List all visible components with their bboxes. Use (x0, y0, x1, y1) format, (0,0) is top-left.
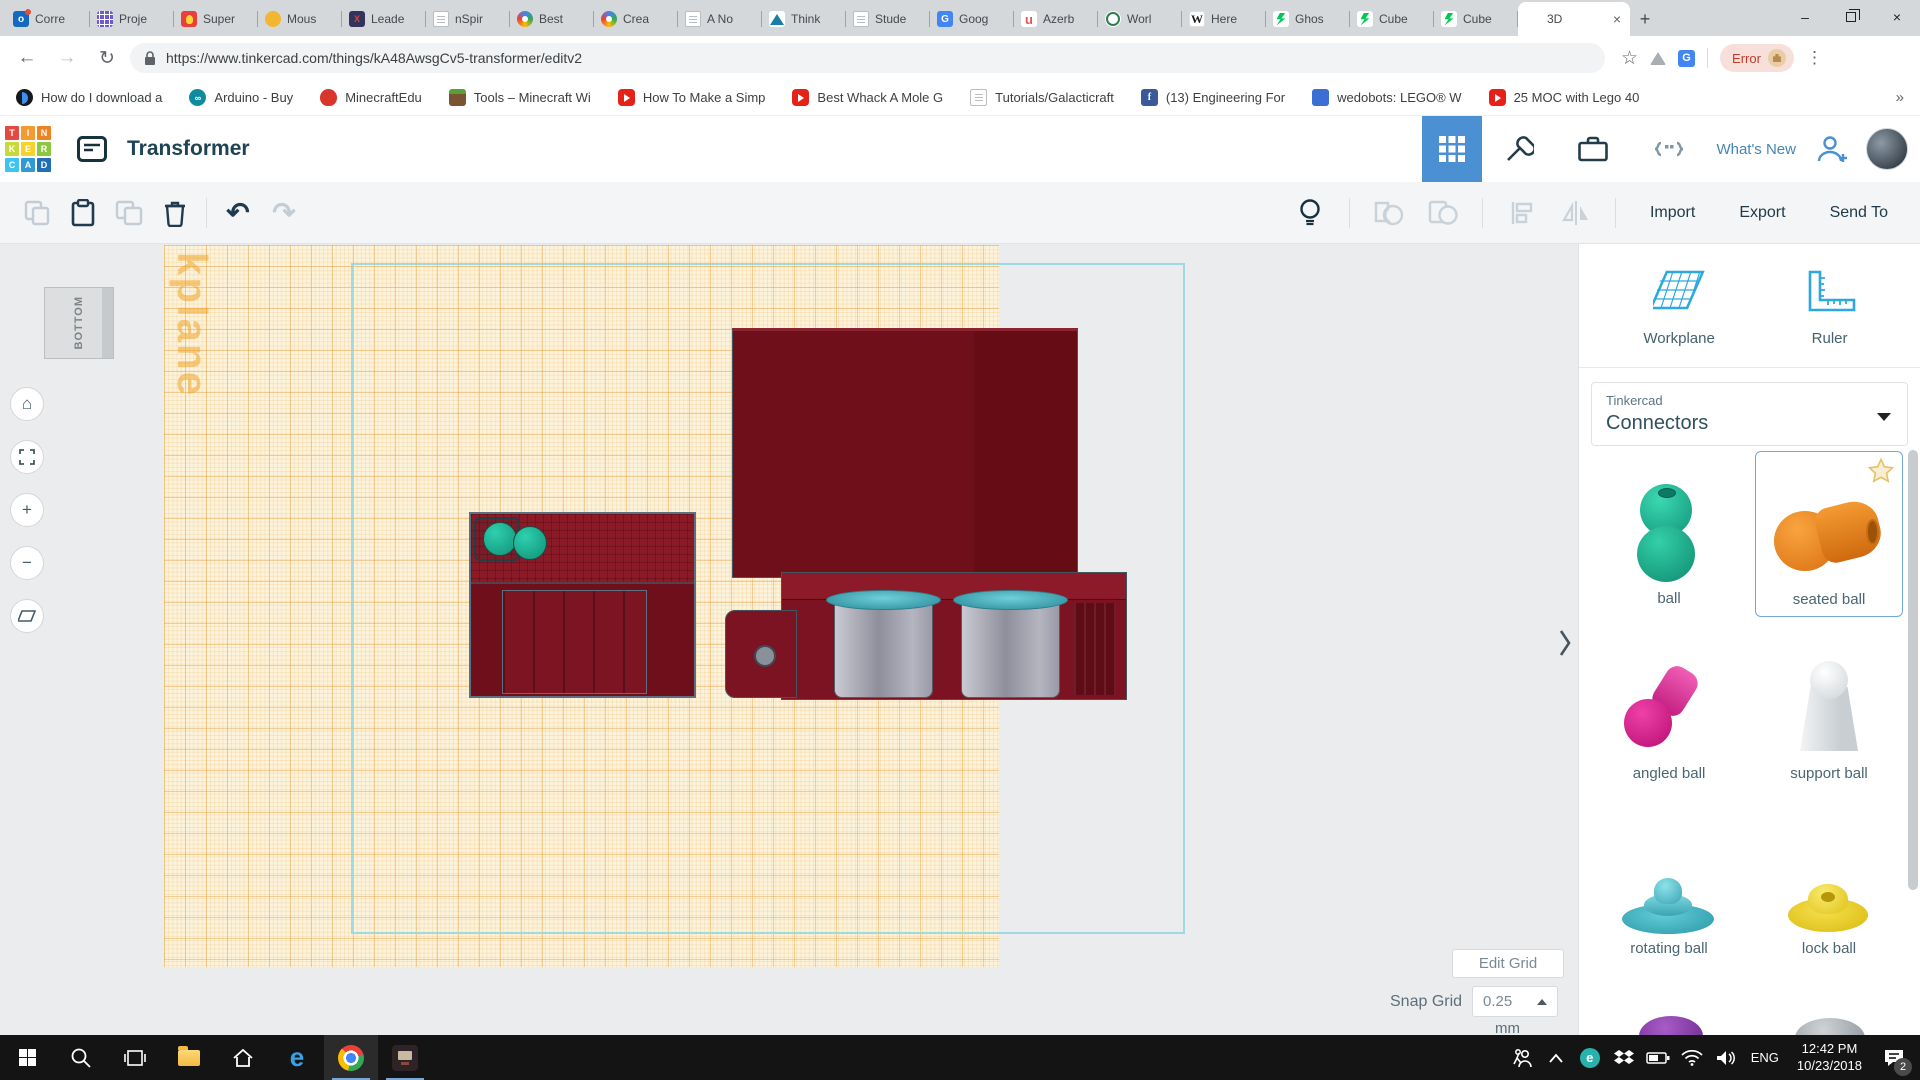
search-button[interactable] (54, 1035, 108, 1080)
ruler-tool[interactable]: Ruler (1804, 270, 1856, 347)
udemy-icon: u (1021, 11, 1037, 27)
lightbulb-icon (181, 11, 197, 27)
mirror-icon[interactable] (1553, 190, 1599, 236)
divider (206, 198, 207, 228)
panel-scrollbar[interactable] (1908, 450, 1918, 890)
youtube-icon (618, 89, 635, 106)
browser-tab[interactable]: GGoog (930, 2, 1014, 36)
window-minimize-button[interactable]: – (1782, 0, 1828, 34)
tinkercad-header: TIN KER CAD Transformer What's New (0, 116, 1920, 182)
redo-icon[interactable]: ↷ (261, 190, 307, 236)
url-text: https://www.tinkercad.com/things/kA48Aws… (166, 50, 582, 66)
browser-tab[interactable]: Think (762, 2, 846, 36)
document-icon (853, 11, 869, 27)
favorite-star-icon[interactable] (1868, 458, 1894, 483)
whats-new-link[interactable]: What's New (1716, 141, 1796, 158)
window-close-button[interactable]: × (1874, 0, 1920, 34)
dashboard-grid-button[interactable] (1422, 116, 1482, 182)
outlook-icon: o (13, 11, 29, 27)
align-icon[interactable] (1499, 190, 1545, 236)
browser-tab[interactable]: Cube (1350, 2, 1434, 36)
invite-person-icon[interactable] (1816, 134, 1850, 164)
model-left-ribs (502, 590, 647, 694)
workplane-tool[interactable]: Workplane (1643, 270, 1714, 347)
shape-angled-ball[interactable]: angled ball (1595, 630, 1743, 790)
palette-icon (601, 11, 617, 27)
snap-grid-label: Snap Grid (1390, 993, 1462, 1011)
bookmark-item[interactable]: Best Whack A Mole G (792, 89, 943, 106)
browser-tab-strip: oCorre Proje Super Mous XLeade nSpir Bes… (0, 0, 1920, 36)
model-cylinder[interactable] (834, 599, 933, 698)
robot-icon (1312, 89, 1329, 106)
chrome-icon (338, 1045, 364, 1071)
extension-puzzle-icon (1768, 49, 1786, 67)
divider (1615, 198, 1616, 228)
copy-icon[interactable] (14, 190, 60, 236)
model-chassis[interactable] (781, 572, 1127, 700)
deviantart-icon (1357, 11, 1373, 27)
shape-lock-ball[interactable]: lock ball (1755, 805, 1903, 965)
edit-toolbar: ↶ ↷ Import Export Send To (0, 182, 1920, 244)
palette-icon (517, 11, 533, 27)
model-teal-cap (953, 590, 1068, 610)
workplane-watermark: kplane (168, 252, 216, 397)
browser-tab[interactable]: Mous (258, 2, 342, 36)
wes-icon (1105, 11, 1121, 27)
document-icon (685, 11, 701, 27)
folder-icon (178, 1050, 200, 1066)
eset-icon[interactable]: e (1575, 1035, 1605, 1080)
restore-icon (1846, 12, 1856, 22)
error-extension-chip[interactable]: Error (1720, 44, 1794, 72)
browser-menu-icon[interactable]: ⋮ (1806, 48, 1823, 68)
circle-icon (16, 89, 33, 106)
tinkercad-icon (1525, 11, 1541, 27)
browser-tab[interactable]: Best (510, 2, 594, 36)
task-view-button[interactable] (108, 1035, 162, 1080)
shape-ball[interactable]: ball (1595, 455, 1743, 615)
bookmark-item[interactable]: How do I download a (16, 89, 162, 106)
browser-tab[interactable]: uAzerb (1014, 2, 1098, 36)
bookmark-item[interactable]: ∞Arduino - Buy (189, 89, 293, 106)
avatar[interactable] (1866, 128, 1908, 170)
ungroup-icon[interactable] (1420, 190, 1466, 236)
language-indicator[interactable]: ENG (1745, 1050, 1785, 1065)
export-button[interactable]: Export (1721, 196, 1803, 230)
mouse-icon (265, 11, 281, 27)
shapes-panel: Workplane Ruler Tinkercad Connectors bal… (1578, 244, 1920, 1080)
task-view-icon (123, 1048, 147, 1068)
shape-seated-ball[interactable]: seated ball (1755, 451, 1903, 617)
windows-logo-icon (19, 1049, 36, 1066)
wifi-icon[interactable] (1677, 1035, 1707, 1080)
bookmarks-overflow-icon[interactable]: » (1896, 89, 1904, 106)
url-input[interactable]: https://www.tinkercad.com/things/kA48Aws… (130, 43, 1605, 73)
zoom-out-button[interactable]: − (10, 546, 44, 580)
lightbulb-show-all-icon[interactable] (1287, 190, 1333, 236)
house-icon (231, 1047, 255, 1069)
model-teal-cap (826, 590, 941, 610)
wikipedia-icon: W (1189, 11, 1205, 27)
bookmark-item[interactable]: Tools – Minecraft Wi (449, 89, 591, 106)
arduino-icon: ∞ (189, 89, 206, 106)
send-to-button[interactable]: Send To (1812, 196, 1906, 230)
apple-icon (320, 89, 337, 106)
import-button[interactable]: Import (1632, 196, 1713, 230)
bookmark-item[interactable]: How To Make a Simp (618, 89, 766, 106)
back-icon[interactable]: ← (10, 41, 44, 75)
translate-icon: G (937, 11, 953, 27)
deviantart-icon (1273, 11, 1289, 27)
forward-icon[interactable]: → (50, 41, 84, 75)
window-restore-button[interactable] (1828, 0, 1874, 34)
model-chassis-ribs (1074, 603, 1116, 695)
autodesk-icon (769, 11, 785, 27)
fit-view-button[interactable] (10, 440, 44, 474)
purple-grid-icon (97, 11, 113, 27)
browser-tab[interactable]: XLeade (342, 2, 426, 36)
tinker-wrench-icon[interactable] (1504, 134, 1534, 164)
caret-up-icon (1537, 999, 1547, 1005)
edit-grid-button[interactable]: Edit Grid (1452, 949, 1564, 978)
model-left-block[interactable] (469, 512, 696, 698)
tray-expand-icon[interactable] (1541, 1035, 1571, 1080)
browser-tab[interactable]: Super (174, 2, 258, 36)
windows-taskbar: e e ENG 12:42 PM10/23/2018 2 (0, 1035, 1920, 1080)
divider (1349, 198, 1350, 228)
home-app-button[interactable] (216, 1035, 270, 1080)
extension-shield-icon[interactable] (1650, 52, 1666, 65)
shape-library-dropdown[interactable]: Tinkercad Connectors (1591, 382, 1908, 446)
browser-tab[interactable]: nSpir (426, 2, 510, 36)
bookmark-item[interactable]: f(13) Engineering For (1141, 89, 1285, 106)
youtube-icon (1489, 89, 1506, 106)
zoom-in-button[interactable]: + (10, 493, 44, 527)
shape-support-ball[interactable]: support ball (1755, 630, 1903, 790)
lock-icon (144, 51, 156, 66)
edge-icon: e (290, 1042, 304, 1073)
search-icon (70, 1047, 92, 1069)
undo-icon[interactable]: ↶ (215, 190, 261, 236)
3d-viewport[interactable]: kplane BOTTOM ⌂ + − Edit Grid (0, 244, 1578, 1080)
model-axle-hole (754, 645, 776, 667)
edx-icon: X (349, 11, 365, 27)
start-button[interactable] (0, 1035, 54, 1080)
action-center-button[interactable]: 2 (1874, 1035, 1914, 1080)
app-icon (392, 1045, 418, 1071)
briefcase-icon[interactable] (1578, 136, 1608, 162)
model-cylinder[interactable] (961, 599, 1060, 698)
battery-icon[interactable] (1643, 1035, 1673, 1080)
notification-badge: 2 (1894, 1058, 1912, 1076)
youtube-icon (792, 89, 809, 106)
facebook-icon: f (1141, 89, 1158, 106)
document-icon (433, 11, 449, 27)
duplicate-icon[interactable] (106, 190, 152, 236)
close-tab-icon[interactable]: × (1611, 11, 1623, 27)
clock[interactable]: 12:42 PM10/23/2018 (1789, 1041, 1870, 1075)
people-icon[interactable] (1507, 1035, 1537, 1080)
browser-tab[interactable]: Cube (1434, 2, 1518, 36)
chrome-button[interactable] (324, 1035, 378, 1080)
bookmarks-bar: How do I download a ∞Arduino - Buy Minec… (0, 80, 1920, 116)
teal-connector-ball[interactable] (513, 526, 547, 560)
divider (1707, 48, 1708, 68)
dropdown-caret-icon (1877, 413, 1891, 421)
browser-tab[interactable]: A No (678, 2, 762, 36)
browser-tab[interactable]: Proje (90, 2, 174, 36)
browser-tab[interactable]: Worl (1098, 2, 1182, 36)
volume-icon[interactable] (1711, 1035, 1741, 1080)
translate-extension-icon[interactable]: G (1678, 50, 1695, 67)
teal-connector-ball[interactable] (483, 522, 517, 556)
dropbox-icon[interactable] (1609, 1035, 1639, 1080)
design-title: Transformer (127, 137, 250, 161)
browser-tab[interactable]: Stude (846, 2, 930, 36)
divider (1482, 198, 1483, 228)
bookmark-item[interactable]: Tutorials/Galacticraft (970, 89, 1114, 106)
panel-collapse-icon[interactable] (1558, 628, 1572, 658)
file-explorer-button[interactable] (162, 1035, 216, 1080)
bookmark-item[interactable]: MinecraftEdu (320, 89, 422, 106)
workplane-icon (1653, 270, 1705, 318)
tinkercad-logo[interactable]: TIN KER CAD (5, 126, 51, 172)
bookmark-star-icon[interactable]: ☆ (1621, 47, 1638, 70)
browser-tab[interactable]: oCorre (6, 2, 90, 36)
snap-grid-select[interactable]: 0.25 (1472, 986, 1558, 1017)
reload-icon[interactable]: ↻ (90, 41, 124, 75)
home-view-button[interactable]: ⌂ (10, 387, 44, 421)
view-cube[interactable]: BOTTOM (44, 287, 114, 359)
model-tall-panel[interactable] (732, 328, 1078, 578)
workplane-view-button[interactable] (10, 599, 44, 633)
bookmark-item[interactable]: 25 MOC with Lego 40 (1489, 89, 1640, 106)
document-icon (970, 89, 987, 106)
ruler-icon (1804, 270, 1856, 318)
pinned-app-button[interactable] (378, 1035, 432, 1080)
browser-tab[interactable]: WHere (1182, 2, 1266, 36)
codeblocks-icon[interactable] (1652, 136, 1686, 162)
shape-rotating-ball[interactable]: rotating ball (1595, 805, 1743, 965)
browser-tab[interactable]: Ghos (1266, 2, 1350, 36)
grid-icon (1439, 136, 1465, 162)
deviantart-icon (1441, 11, 1457, 27)
delete-trash-icon[interactable] (152, 190, 198, 236)
address-bar: ← → ↻ https://www.tinkercad.com/things/k… (0, 36, 1920, 80)
browser-tab-active[interactable]: 3D × (1518, 2, 1630, 36)
new-tab-button[interactable]: + (1630, 4, 1660, 34)
edge-button[interactable]: e (270, 1035, 324, 1080)
group-icon[interactable] (1366, 190, 1412, 236)
design-menu-icon[interactable] (77, 136, 107, 162)
grass-block-icon (449, 89, 466, 106)
bookmark-item[interactable]: wedobots: LEGO® W (1312, 89, 1461, 106)
paste-icon[interactable] (60, 190, 106, 236)
browser-tab[interactable]: Crea (594, 2, 678, 36)
divider (1579, 367, 1920, 368)
